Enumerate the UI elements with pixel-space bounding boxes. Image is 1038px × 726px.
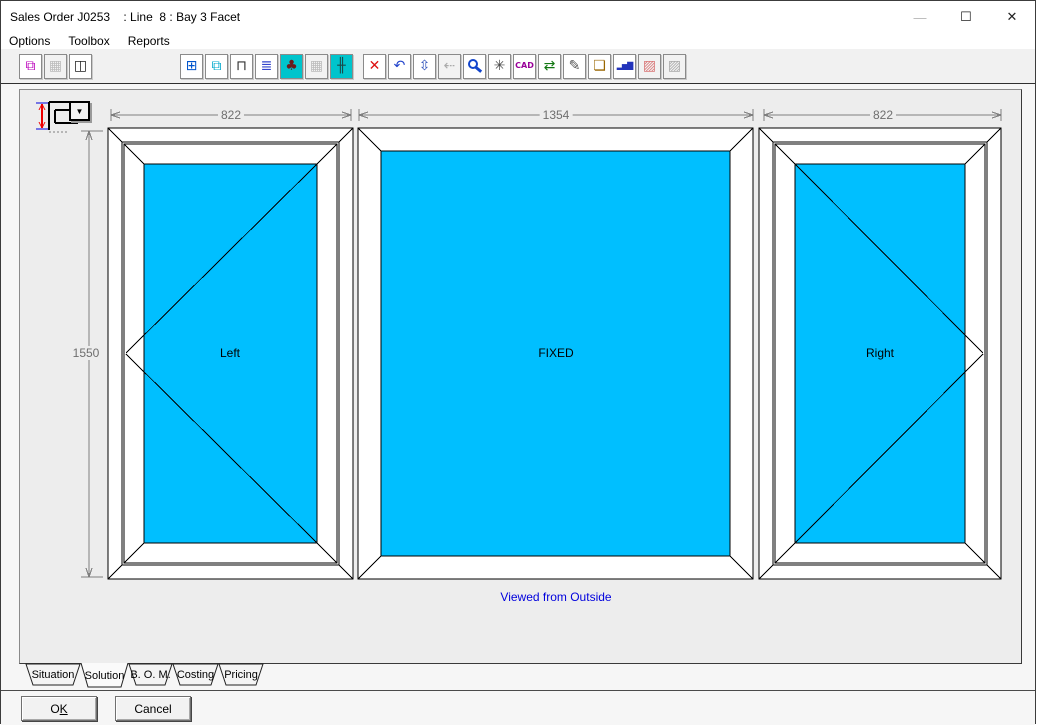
menu-bar: Options Toolbox Reports (1, 33, 1035, 49)
window-title: Sales Order J0253 : Line 8 : Bay 3 Facet (1, 10, 240, 24)
tab-situation[interactable]: Situation (26, 664, 80, 685)
zoom-button[interactable] (463, 54, 486, 79)
profile-colors-button[interactable]: ⧉ (19, 54, 42, 79)
cancel-button[interactable]: Cancel (115, 696, 191, 721)
ok-button[interactable]: OK (21, 696, 97, 721)
chart-button[interactable]: ▂▅▇ (613, 54, 636, 79)
tab-costing[interactable]: Costing (173, 664, 218, 685)
hardware-icon: ⊓ (236, 59, 247, 73)
brush-button[interactable]: ✎ (563, 54, 586, 79)
workspace: ▼ (1, 84, 1035, 664)
profile-colors-icon: ⧉ (26, 59, 36, 73)
close-icon: ✕ (1007, 9, 1018, 25)
panel-label-left: Left (220, 346, 240, 360)
export-icon: ❏ (593, 59, 606, 73)
maximize-icon: ☐ (960, 9, 972, 25)
close-button[interactable]: ✕ (989, 1, 1035, 33)
menu-options[interactable]: Options (1, 33, 59, 49)
refresh-button[interactable]: ✳ (488, 54, 511, 79)
garden-view-icon: ♣ (285, 59, 298, 73)
shift-disabled-button: ⇠ (438, 54, 461, 79)
grid-disabled-icon: ▦ (49, 59, 62, 73)
window-controls: — ☐ ✕ (897, 1, 1035, 33)
grid-disabled-button: ▦ (44, 54, 67, 79)
glazing-icon: ⧉ (212, 59, 222, 73)
maximize-button[interactable]: ☐ (943, 1, 989, 33)
title-bar: Sales Order J0253 : Line 8 : Bay 3 Facet… (1, 1, 1035, 33)
export-button[interactable]: ❏ (588, 54, 611, 79)
options-list-icon: ≣ (261, 59, 273, 73)
pricing-disabled-button: ▨ (638, 54, 661, 79)
frame-design-icon: ⊞ (186, 59, 198, 73)
panel-label-fixed: FIXED (538, 346, 573, 360)
svg-text:Solution: Solution (85, 670, 125, 682)
frame-design-button[interactable]: ⊞ (180, 54, 203, 79)
dim-width-right: 822 (870, 108, 896, 122)
footer-bar: OK Cancel (1, 690, 1035, 725)
tab-strip: Situation B. O. M. Costing Pricing Solut… (1, 664, 1035, 690)
minimize-button[interactable]: — (897, 1, 943, 33)
tab-solution[interactable]: Solution (81, 663, 128, 687)
dimensions-icon: ⇳ (419, 59, 431, 73)
delete-button[interactable]: ✕ (363, 54, 386, 79)
dim-width-left: 822 (218, 108, 244, 122)
undo-icon: ↶ (394, 59, 406, 73)
glazing-button[interactable]: ⧉ (205, 54, 228, 79)
transom-button[interactable]: ╫ (330, 54, 353, 79)
hardware-button[interactable]: ⊓ (230, 54, 253, 79)
open-panel-icon: ◫ (74, 59, 87, 73)
pattern-disabled-button: ▦ (305, 54, 328, 79)
pattern-disabled-icon: ▦ (310, 59, 323, 73)
dim-width-middle: 1354 (540, 108, 573, 122)
tab-bom[interactable]: B. O. M. (129, 664, 172, 685)
dim-height: 1550 (70, 346, 103, 360)
options-list-button[interactable]: ≣ (255, 54, 278, 79)
app-window: Sales Order J0253 : Line 8 : Bay 3 Facet… (0, 0, 1036, 724)
garden-view-button[interactable]: ♣ (280, 54, 303, 79)
panel-label-right: Right (866, 346, 894, 360)
open-panel-button[interactable]: ◫ (69, 54, 92, 79)
svg-text:Situation: Situation (32, 669, 75, 681)
swap-icon: ⇄ (544, 59, 556, 73)
view-caption: Viewed from Outside (500, 590, 611, 604)
dimension-style-dropdown[interactable]: ▼ (69, 101, 90, 121)
toolbar: ⧉ ▦ ◫ ⊞ ⧉ ⊓ ≣ ♣ ▦ ╫ ✕ ↶ ⇳ ⇠ ✳ CAD ⇄ ✎ ❏ … (1, 49, 1035, 84)
minimize-icon: — (914, 10, 927, 25)
svg-text:Pricing: Pricing (224, 669, 258, 681)
transom-icon: ╫ (337, 59, 345, 73)
cad-button[interactable]: CAD (513, 54, 536, 79)
pricing-disabled-icon: ▨ (643, 59, 656, 73)
tab-pricing[interactable]: Pricing (219, 664, 263, 685)
menu-toolbox[interactable]: Toolbox (59, 33, 118, 49)
refresh-icon: ✳ (494, 59, 506, 73)
chart-icon: ▂▅▇ (617, 62, 632, 70)
chevron-down-icon: ▼ (76, 107, 84, 116)
brush-icon: ✎ (569, 59, 581, 73)
bay-drawing (20, 90, 1021, 663)
svg-text:Costing: Costing (177, 669, 214, 681)
undo-button[interactable]: ↶ (388, 54, 411, 79)
cad-icon: CAD (515, 62, 534, 70)
delete-icon: ✕ (369, 59, 381, 73)
notes-disabled-button: ▨ (663, 54, 686, 79)
svg-text:B. O. M.: B. O. M. (130, 669, 170, 681)
notes-disabled-icon: ▨ (668, 59, 681, 73)
design-canvas: ▼ (19, 89, 1022, 664)
shift-disabled-icon: ⇠ (444, 59, 456, 73)
dimensions-button[interactable]: ⇳ (413, 54, 436, 79)
swap-button[interactable]: ⇄ (538, 54, 561, 79)
zoom-icon (468, 59, 478, 69)
menu-reports[interactable]: Reports (119, 33, 179, 49)
